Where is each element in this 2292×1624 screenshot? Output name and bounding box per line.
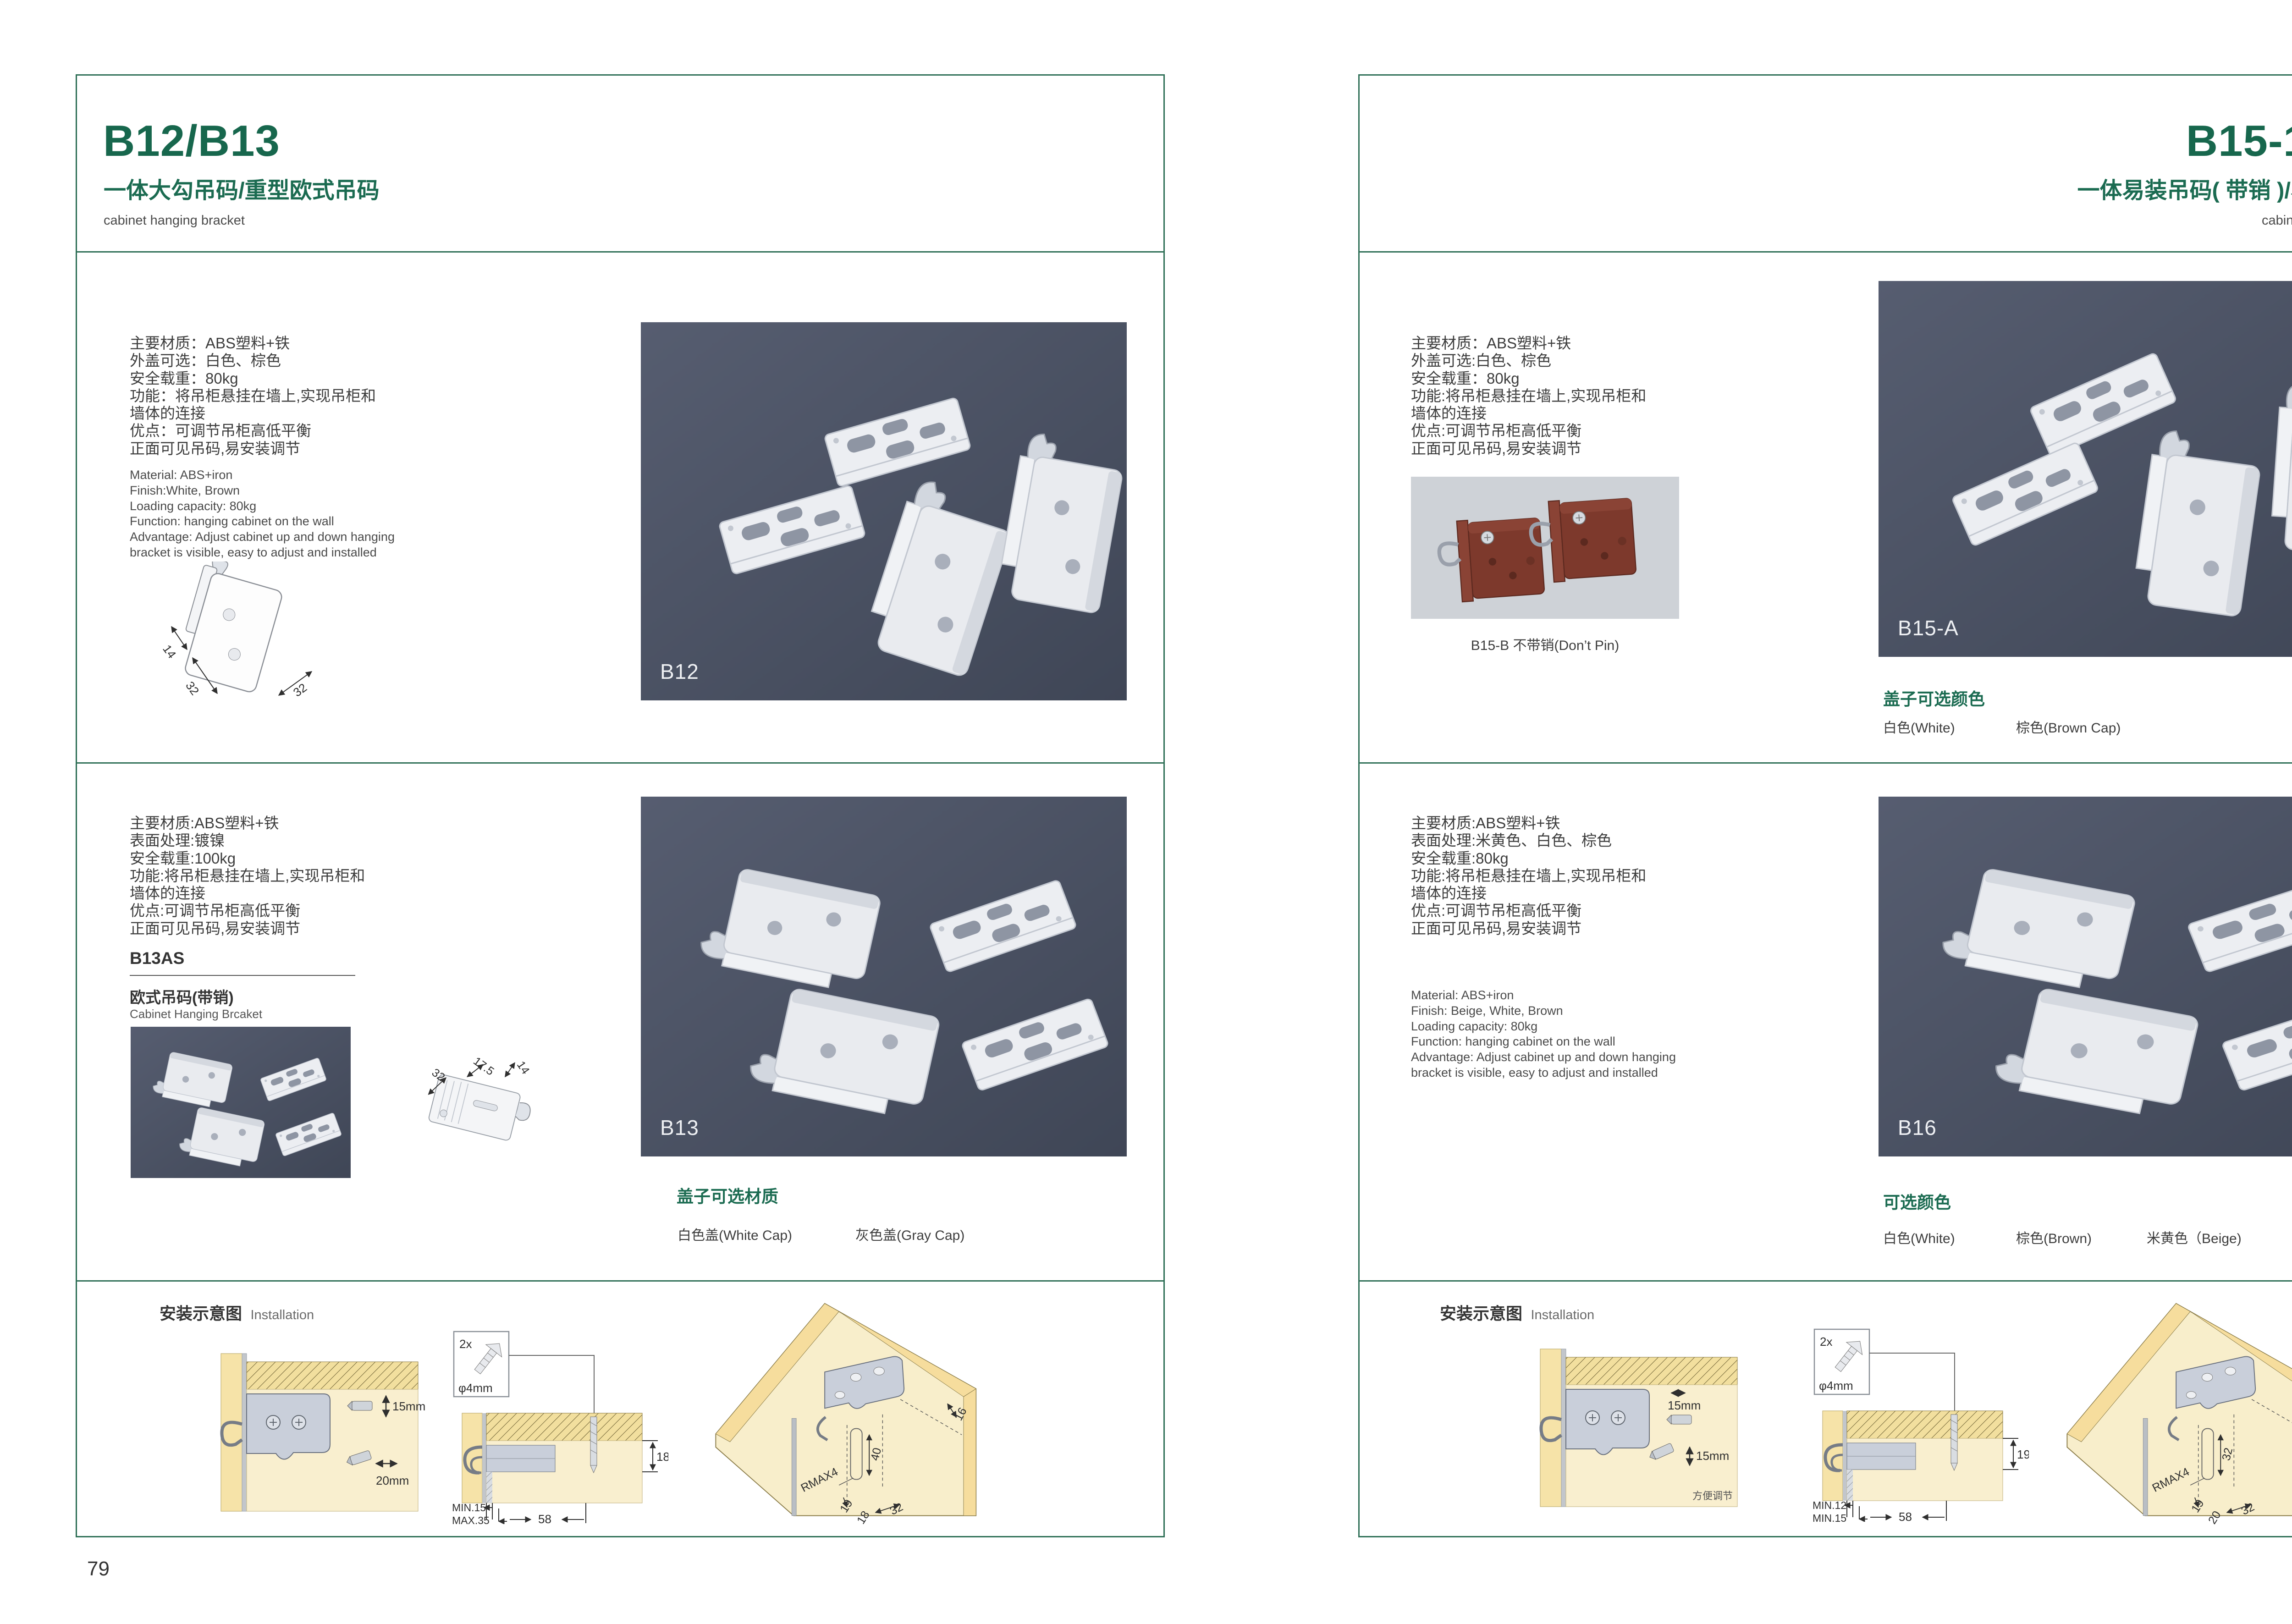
b16-product-photo: B16: [1879, 797, 2292, 1156]
adjust-note: 方便调节: [1692, 1490, 1733, 1502]
dim-label: MIN.15: [452, 1502, 486, 1514]
cap-color-heading: 盖子可选颜色: [1883, 685, 1985, 710]
b13-model-code: B13AS: [130, 949, 184, 968]
b12-product-photo: B12: [641, 322, 1127, 700]
spec-line: 墙体的连接: [130, 885, 365, 902]
page-subtitle-en: cabinet hanging bracket: [2262, 213, 2292, 228]
spec-line: 优点:可调节吊柜高低平衡: [130, 902, 365, 919]
spec-line: Advantage: Adjust cabinet up and down ha…: [1411, 1050, 1676, 1065]
dim-label: 15mm: [392, 1399, 425, 1413]
b12-technical-drawing: 14 32 32: [127, 562, 338, 717]
spec-line: 墙体的连接: [130, 405, 376, 422]
spec-line: Function: hanging cabinet on the wall: [130, 514, 395, 529]
dim-label: MIN.15: [1813, 1512, 1846, 1522]
b12-specs-en: Material: ABS+iron Finish:White, Brown L…: [130, 468, 395, 561]
spec-line: 墙体的连接: [1411, 885, 1646, 902]
spec-line: 功能：将吊柜悬挂在墙上,实现吊柜和: [130, 387, 376, 405]
photo-label: B16: [1898, 1115, 1937, 1140]
spec-line: 功能:将吊柜悬挂在墙上,实现吊柜和: [130, 867, 365, 885]
catalog-spread: B12/B13 一体大勾吊码/重型欧式吊码 cabinet hanging br…: [0, 0, 2292, 1624]
color-option: 米黄色（Beige): [2147, 1227, 2242, 1247]
cap-option: 灰色盖(Gray Cap): [855, 1224, 964, 1244]
b13-photo-illustration: [641, 797, 1127, 1156]
dim-label: 17.5: [471, 1055, 496, 1078]
spec-line: 表面处理:米黄色、白色、棕色: [1411, 832, 1646, 849]
spec-line: 安全载重：80kg: [1411, 370, 1646, 387]
installation-diagram-3d: 30 32 RMAX4 19 20 32: [2043, 1288, 2292, 1536]
page-left: B12/B13 一体大勾吊码/重型欧式吊码 cabinet hanging br…: [76, 74, 1165, 1537]
b13-technical-drawing: 32 17.5 14: [405, 1045, 556, 1160]
cap-color-option: 棕色(Brown Cap): [2016, 716, 2121, 737]
spec-line: 优点:可调节吊柜高低平衡: [1411, 902, 1646, 919]
b15-specs-zh: 主要材质：ABS塑料+铁 外盖可选:白色、棕色 安全载重：80kg 功能:将吊柜…: [1411, 335, 1646, 457]
spec-line: 功能:将吊柜悬挂在墙上,实现吊柜和: [1411, 387, 1646, 405]
dim-label: 14: [160, 642, 179, 661]
screw-diameter-label: φ4mm: [1819, 1379, 1853, 1393]
installation-diagram-side: 15mm 15mm 方便调节: [1534, 1345, 1745, 1510]
spec-line: Advantage: Adjust cabinet up and down ha…: [130, 529, 395, 545]
installation-heading-zh: 安装示意图: [160, 1304, 242, 1323]
screw-count-label: 2x: [459, 1337, 472, 1351]
b13-product-photo: B13: [641, 797, 1127, 1156]
b13-specs-zh: 主要材质:ABS塑料+铁 表面处理:镀镍 安全载重:100kg 功能:将吊柜悬挂…: [130, 815, 365, 937]
spec-line: 安全载重:100kg: [130, 850, 365, 867]
page-subtitle-en: cabinet hanging bracket: [104, 213, 245, 228]
installation-diagram-screw: 2x φ4mm: [448, 1327, 668, 1524]
spec-line: 功能:将吊柜悬挂在墙上,实现吊柜和: [1411, 867, 1646, 885]
spec-line: 主要材质：ABS塑料+铁: [1411, 335, 1646, 352]
spec-line: 墙体的连接: [1411, 405, 1646, 422]
spec-line: Loading capacity: 80kg: [1411, 1019, 1676, 1035]
dim-label: 20mm: [376, 1474, 409, 1487]
spec-line: 表面处理:镀镍: [130, 832, 365, 849]
dim-label: 14: [514, 1059, 532, 1077]
b13-model-name-zh: 欧式吊码(带销): [130, 985, 234, 1007]
installation-diagram-screw: 2x φ4mm: [1809, 1325, 2029, 1522]
spec-line: Function: hanging cabinet on the wall: [1411, 1034, 1676, 1050]
section-divider: [1360, 1280, 2292, 1282]
color-option: 棕色(Brown): [2016, 1227, 2092, 1247]
spec-line: 安全载重:80kg: [1411, 850, 1646, 867]
dim-label: 32: [183, 679, 202, 698]
dim-label: MAX.35: [452, 1514, 490, 1524]
b13-model-name-en: Cabinet Hanging Brcaket: [130, 1007, 262, 1021]
spec-line: 外盖可选：白色、棕色: [130, 352, 376, 369]
section-divider: [77, 1280, 1163, 1282]
spec-line: bracket is visible, easy to adjust and i…: [130, 545, 395, 561]
section-divider: [1360, 762, 2292, 764]
spec-line: Material: ABS+iron: [1411, 988, 1676, 1003]
cap-option: 白色盖(White Cap): [678, 1224, 792, 1244]
cap-color-option: 白色(White): [1883, 716, 1955, 737]
installation-heading-zh: 安装示意图: [1440, 1304, 1522, 1323]
spec-line: 正面可见吊码,易安装调节: [130, 440, 376, 457]
page-title: B15-1/B16: [2186, 119, 2292, 163]
photo-label: B15-A: [1898, 616, 1959, 640]
section-divider: [1360, 251, 2292, 253]
installation-heading: 安装示意图 Installation: [160, 1300, 314, 1324]
color-option: 白色(White): [1883, 1227, 1955, 1247]
spec-line: Material: ABS+iron: [130, 468, 395, 483]
page-subtitle-zh: 一体易装吊码( 带销 )/易调节吊码: [2077, 179, 2292, 204]
dim-label: 15mm: [1668, 1398, 1701, 1412]
b12-photo-illustration: [641, 322, 1127, 700]
dim-label: 32: [291, 681, 309, 699]
installation-diagram-side: 15mm 20mm: [215, 1350, 425, 1515]
dim-label: 19: [2017, 1448, 2029, 1461]
spec-line: Finish:White, Brown: [130, 483, 395, 499]
spec-line: 正面可见吊码,易安装调节: [1411, 440, 1646, 457]
dim-label: MIN.12: [1813, 1499, 1846, 1511]
model-underline: [130, 975, 355, 976]
screw-count-label: 2x: [1820, 1335, 1832, 1349]
page-number-left: 79: [87, 1558, 110, 1580]
page-subtitle-zh: 一体大勾吊码/重型欧式吊码: [104, 179, 380, 204]
dim-label: 15mm: [1696, 1449, 1729, 1463]
spec-line: 优点：可调节吊柜高低平衡: [130, 422, 376, 440]
photo-label: B12: [660, 659, 699, 684]
b13as-photo: [131, 1027, 351, 1178]
b12-specs-zh: 主要材质：ABS塑料+铁 外盖可选：白色、棕色 安全载重：80kg 功能：将吊柜…: [130, 335, 376, 457]
b15b-caption: B15-B 不带销(Don’t Pin): [1411, 634, 1679, 654]
b15a-product-photo: B15-A: [1879, 281, 2292, 657]
dim-label: 18: [656, 1450, 668, 1464]
section-divider: [77, 762, 1163, 764]
photo-label: B13: [660, 1115, 699, 1140]
spec-line: 正面可见吊码,易安装调节: [130, 920, 365, 937]
spec-line: Finish: Beige, White, Brown: [1411, 1003, 1676, 1019]
spec-line: 外盖可选:白色、棕色: [1411, 352, 1646, 369]
b15a-photo-illustration: [1879, 281, 2292, 657]
installation-heading: 安装示意图 Installation: [1440, 1300, 1594, 1324]
spec-line: 优点:可调节吊柜高低平衡: [1411, 422, 1646, 440]
cap-options-heading: 盖子可选材质: [677, 1183, 778, 1207]
installation-heading-en: Installation: [250, 1308, 314, 1322]
spec-line: 主要材质：ABS塑料+铁: [130, 335, 376, 352]
dim-label: 58: [1899, 1510, 1912, 1522]
b15b-photo-illustration: [1411, 477, 1679, 619]
spec-line: 主要材质:ABS塑料+铁: [1411, 815, 1646, 832]
b13as-photo-illustration: [131, 1027, 351, 1178]
b15b-photo: [1411, 477, 1679, 619]
b16-specs-en: Material: ABS+iron Finish: Beige, White,…: [1411, 988, 1676, 1081]
dim-label: 58: [538, 1512, 551, 1524]
b16-specs-zh: 主要材质:ABS塑料+铁 表面处理:米黄色、白色、棕色 安全载重:80kg 功能…: [1411, 815, 1646, 937]
screw-diameter-label: φ4mm: [458, 1381, 493, 1395]
spec-line: 安全载重：80kg: [130, 370, 376, 387]
color-options-heading: 可选颜色: [1883, 1189, 1951, 1213]
b16-photo-illustration: [1879, 797, 2292, 1156]
page-title: B12/B13: [103, 119, 280, 163]
installation-heading-en: Installation: [1531, 1308, 1594, 1322]
spec-line: 主要材质:ABS塑料+铁: [130, 815, 365, 832]
page-right: B15-1/B16 一体易装吊码( 带销 )/易调节吊码 cabinet han…: [1358, 74, 2292, 1537]
spec-line: Loading capacity: 80kg: [130, 499, 395, 514]
spec-line: 正面可见吊码,易安装调节: [1411, 920, 1646, 937]
installation-diagram-3d: 16 40 RMAX4 19 18 32: [691, 1288, 994, 1536]
section-divider: [77, 251, 1163, 253]
spec-line: bracket is visible, easy to adjust and i…: [1411, 1065, 1676, 1081]
